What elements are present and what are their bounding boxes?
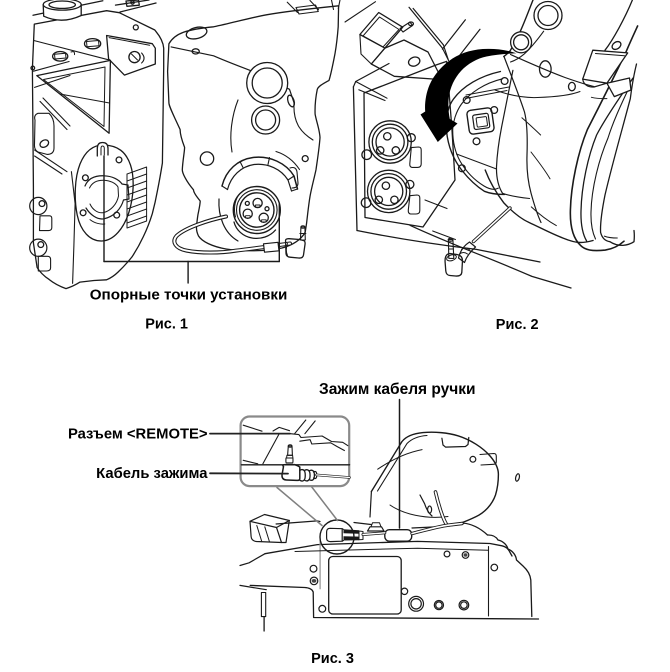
svg-text:Рис. 3: Рис. 3	[311, 651, 354, 667]
svg-text:Зажим кабеля ручки: Зажим кабеля ручки	[319, 381, 476, 398]
svg-text:Рис. 1: Рис. 1	[145, 317, 188, 333]
svg-text:Опорные точки установки: Опорные точки установки	[90, 287, 288, 304]
svg-text:Рис. 2: Рис. 2	[496, 317, 539, 333]
svg-text:Разъем <REMOTE>: Разъем <REMOTE>	[68, 427, 208, 443]
svg-text:Кабель зажима: Кабель зажима	[96, 466, 208, 482]
